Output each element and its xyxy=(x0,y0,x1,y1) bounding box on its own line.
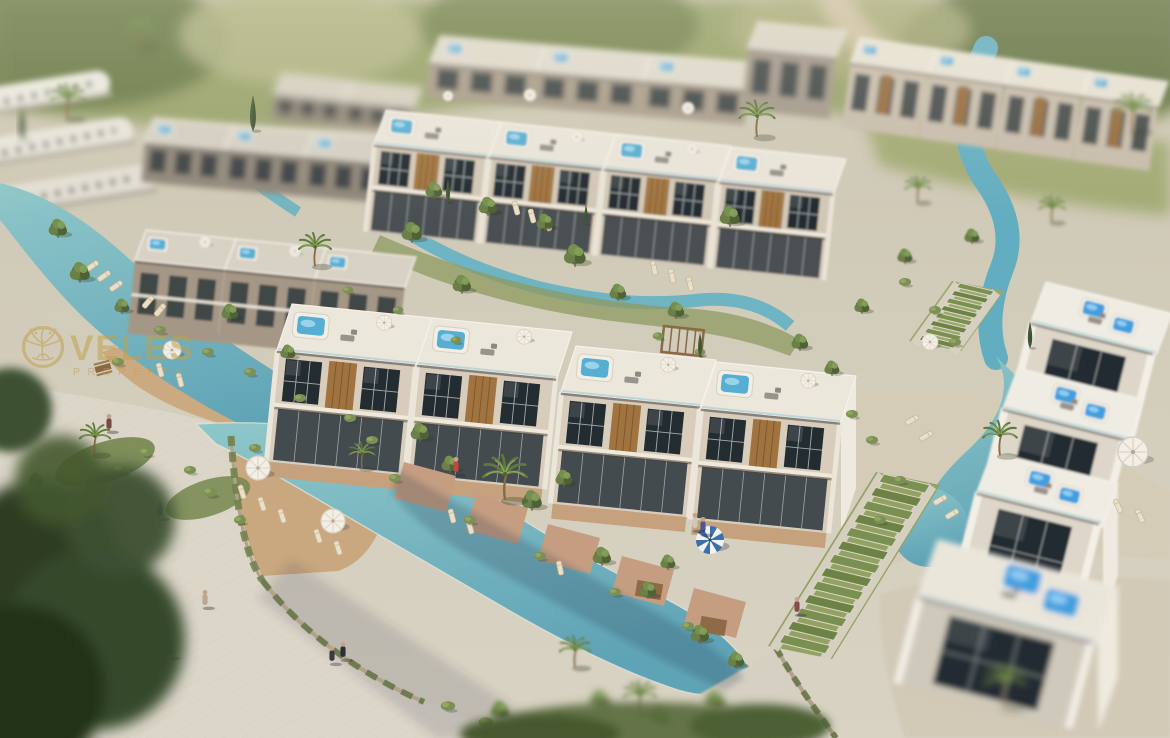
villa-facade xyxy=(262,350,418,491)
aerial-render-image: VELES PROPERTY xyxy=(0,0,1170,738)
villa-unit xyxy=(686,362,856,548)
window-reflection xyxy=(647,410,663,426)
villa-facade xyxy=(546,392,702,533)
window-reflection xyxy=(425,374,441,390)
rooftop-pool xyxy=(237,245,259,261)
chair xyxy=(775,387,781,393)
window-reflection xyxy=(285,360,301,376)
rooftop-pool xyxy=(292,312,330,341)
rooftop-pool xyxy=(716,370,754,399)
rooftop-pool xyxy=(147,236,169,252)
scene-canvas: VELES PROPERTY xyxy=(0,0,1170,738)
window-reflection xyxy=(787,426,803,442)
watermark-subtitle: PROPERTY xyxy=(73,366,191,378)
foreground-tree-left xyxy=(0,435,185,738)
watermark-brand: VELES xyxy=(70,329,195,368)
rooftop-pool xyxy=(576,354,614,383)
chair xyxy=(635,371,641,377)
window-reflection xyxy=(363,368,379,384)
window-reflection xyxy=(503,382,519,398)
tilt-shift-haze xyxy=(0,0,1170,220)
window-reflection xyxy=(569,402,585,418)
window-reflection xyxy=(709,418,725,434)
chair xyxy=(351,329,357,335)
chair xyxy=(491,343,497,349)
umbrella-pole xyxy=(708,538,711,541)
